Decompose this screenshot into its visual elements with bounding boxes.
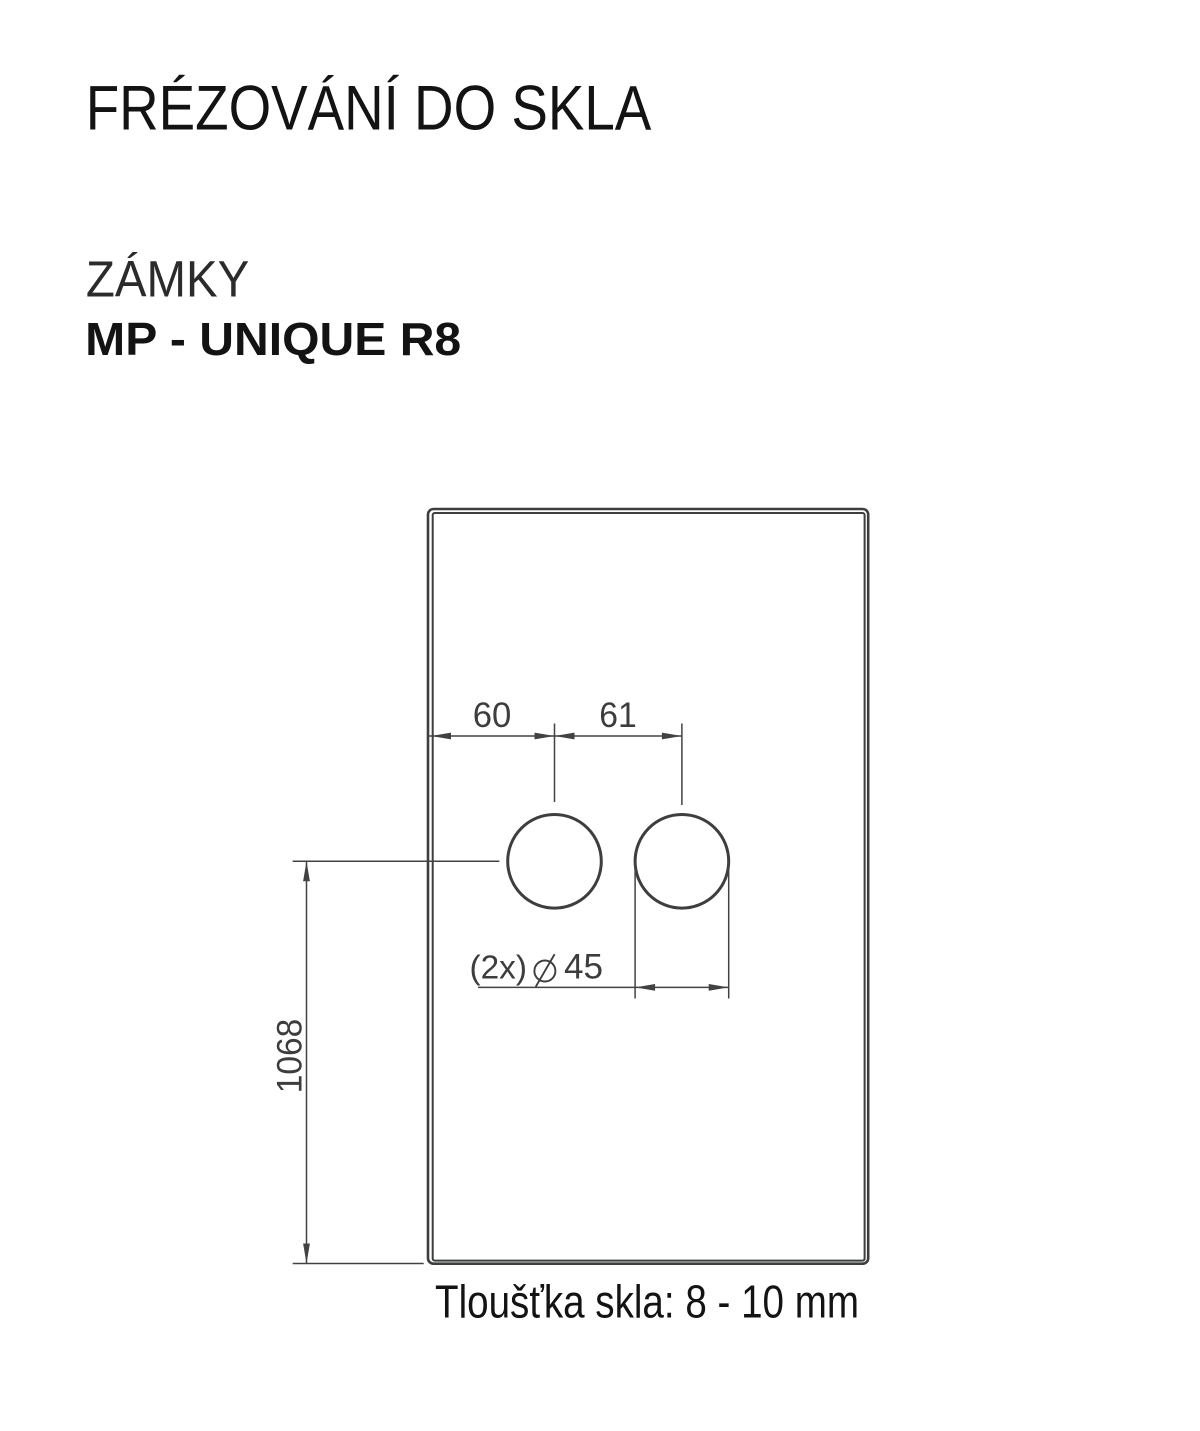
svg-text:61: 61	[599, 696, 637, 735]
svg-text:MP - UNIQUE R8: MP - UNIQUE R8	[85, 313, 461, 365]
svg-text:(2x): (2x)	[470, 949, 528, 986]
svg-text:Tloušťka skla: 8 - 10 mm: Tloušťka skla: 8 - 10 mm	[435, 1276, 859, 1328]
svg-text:45: 45	[564, 948, 603, 987]
svg-text:FRÉZOVÁNÍ DO SKLA: FRÉZOVÁNÍ DO SKLA	[86, 74, 652, 144]
svg-text:1068: 1068	[271, 1019, 310, 1094]
svg-text:60: 60	[473, 696, 512, 735]
svg-text:ZÁMKY: ZÁMKY	[86, 251, 249, 308]
